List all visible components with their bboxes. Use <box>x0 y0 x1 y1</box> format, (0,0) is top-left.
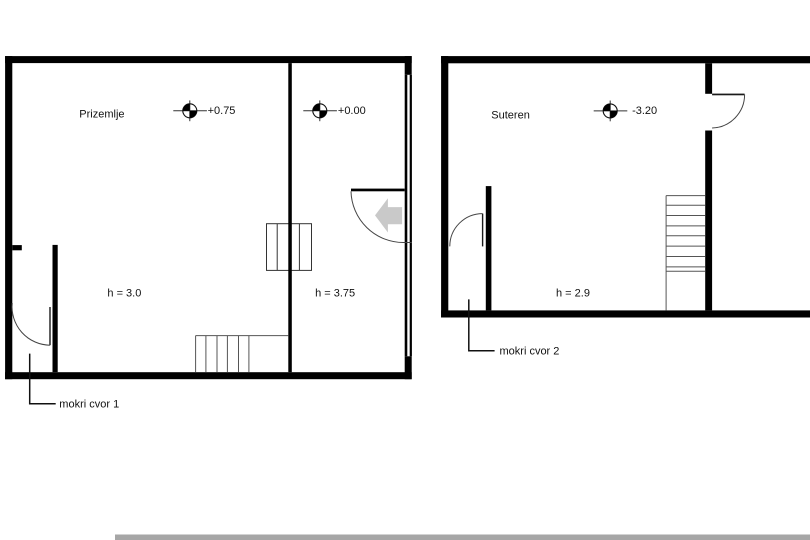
svg-text:h = 2.9: h = 2.9 <box>556 287 590 299</box>
svg-text:-3.20: -3.20 <box>632 105 657 117</box>
svg-text:Suteren: Suteren <box>491 109 530 121</box>
svg-text:+0.75: +0.75 <box>208 105 236 117</box>
svg-text:mokri cvor 2: mokri cvor 2 <box>500 346 560 358</box>
svg-text:+0.00: +0.00 <box>338 105 366 117</box>
svg-text:Prizemlje: Prizemlje <box>79 108 124 120</box>
svg-text:h = 3.75: h = 3.75 <box>315 288 355 300</box>
svg-text:mokri cvor 1: mokri cvor 1 <box>59 399 119 411</box>
svg-text:h = 3.0: h = 3.0 <box>107 288 141 300</box>
